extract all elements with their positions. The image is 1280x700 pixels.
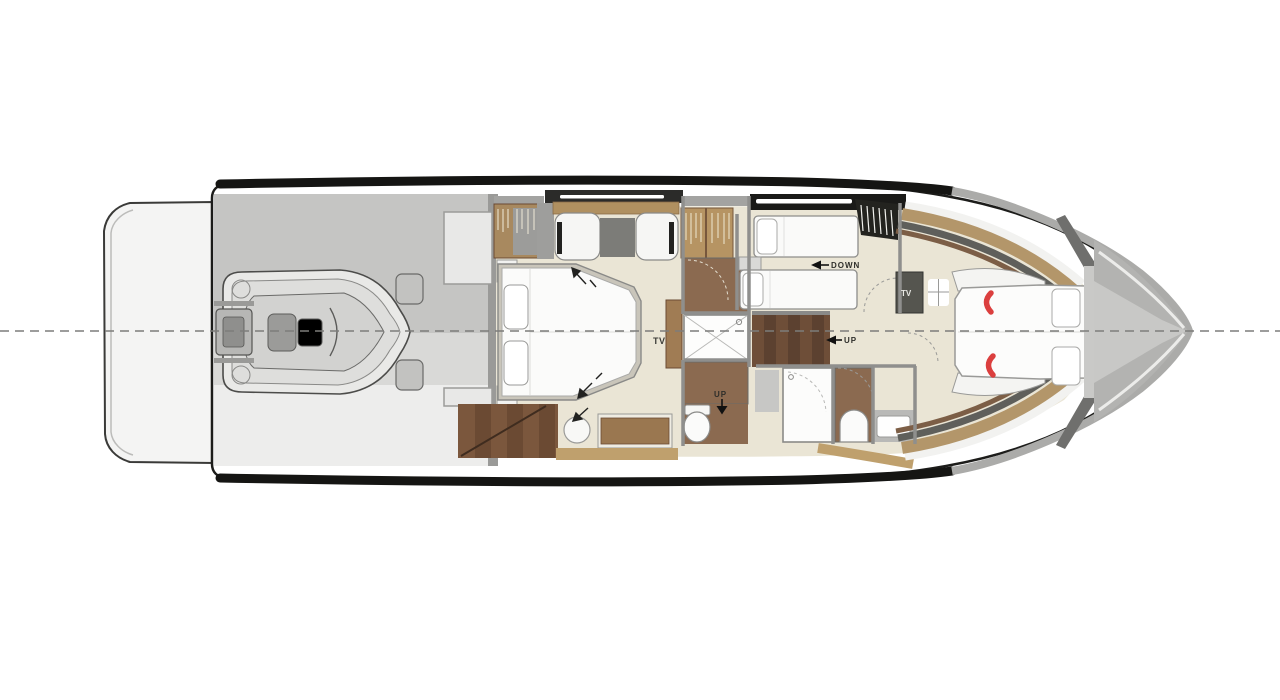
pillow [504,341,528,385]
shower [684,315,748,360]
skylight-hatch [928,279,949,306]
master-wall-segment [537,203,554,259]
stairs-down-label: DOWN [831,261,860,270]
hull-window-top [560,186,668,191]
garage-locker-top [444,212,492,284]
shower-2 [783,368,833,442]
settee-table [600,218,635,257]
twin-hanging-locker [855,199,898,240]
pillow [1052,289,1080,327]
master-wardrobe [494,204,542,258]
toilet [684,405,710,442]
hull-window-bottom [560,468,668,473]
head-up-label: UP [714,390,727,399]
master-bed [498,264,641,400]
stairs-up-label: UP [844,336,857,345]
pillow [504,285,528,329]
master-settee [553,202,679,260]
vip-bed [950,280,1088,385]
central-stairs [752,311,830,367]
toilet-2 [840,410,868,442]
master-tv-label: TV [653,336,666,346]
cabinet [755,370,779,412]
pillow [757,219,777,254]
tv-cabinet [666,300,682,368]
twin-bed-1 [754,216,858,257]
stool [564,417,590,443]
deck-plan-drawing: TV TV DOWN UP UP [0,0,1280,700]
side-ledge [556,448,678,460]
hanging-locker [681,208,733,258]
tender-engine [214,301,254,363]
foyer-tv-label: TV [901,289,912,298]
swim-platform [104,202,214,463]
yacht-deck-plan: TV TV DOWN UP UP [0,0,1280,700]
master-stairs [458,404,558,458]
tender-cradle-top [396,274,423,304]
twin-bed-2 [740,270,857,309]
pillow [743,273,763,306]
pillow [1052,347,1080,385]
tender-cradle-bottom [396,360,423,390]
garage-locker-bottom [444,388,492,406]
